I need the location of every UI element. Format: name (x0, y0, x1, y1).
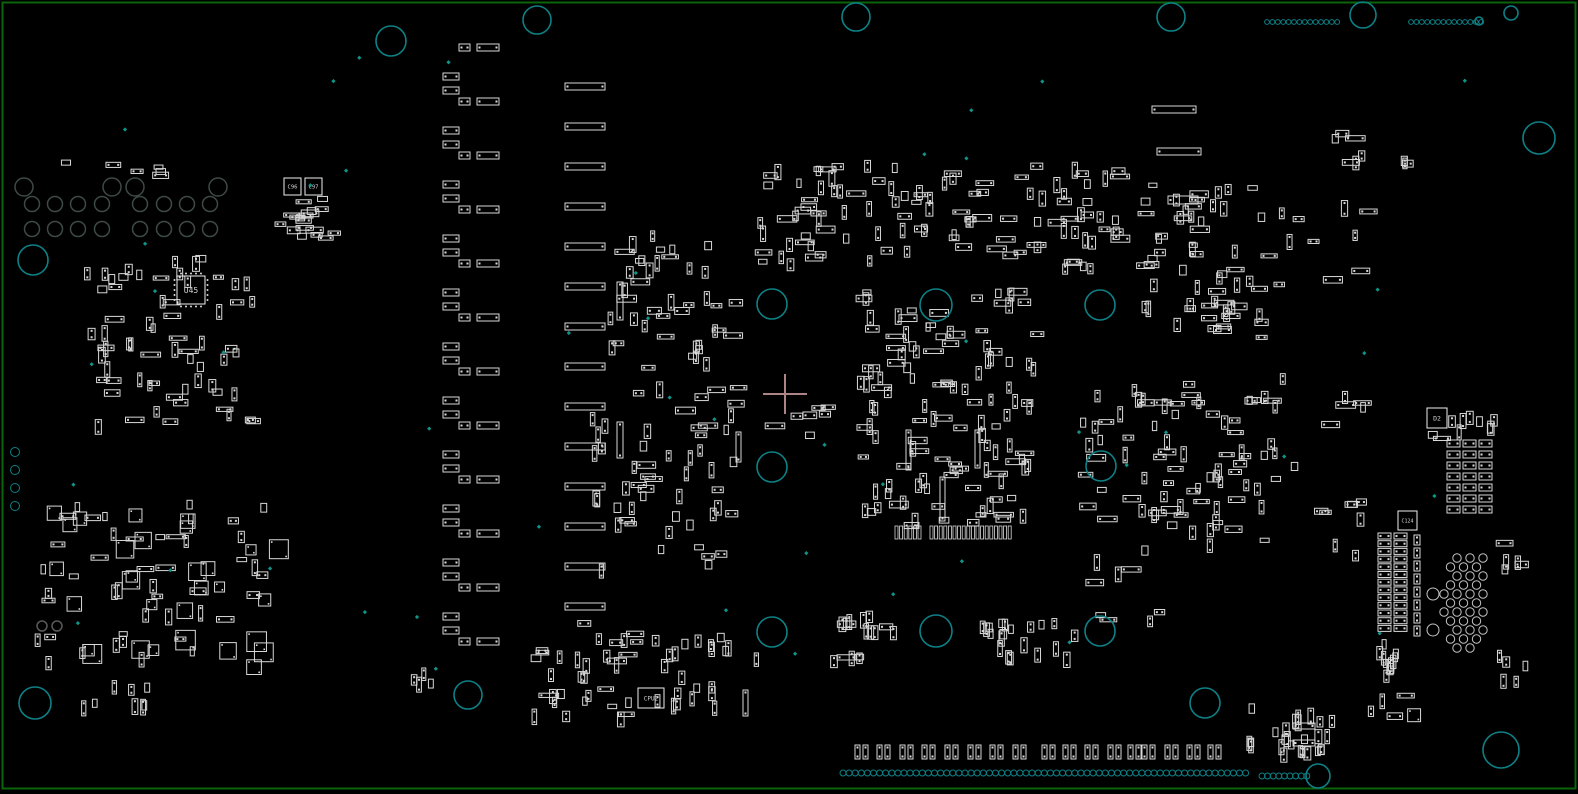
pad-marker (1334, 548, 1336, 550)
pad-marker (585, 670, 587, 672)
pad-marker (869, 420, 871, 422)
pad-marker (674, 648, 676, 650)
pad-marker (967, 223, 969, 225)
pad-marker (1416, 550, 1418, 552)
pad-marker (681, 681, 683, 683)
pad-marker (52, 636, 54, 638)
pad-marker (1249, 278, 1251, 280)
pad-marker (779, 218, 781, 220)
pad-marker (602, 366, 604, 368)
pad-marker (1261, 510, 1263, 512)
pad-marker (1014, 396, 1016, 398)
pad-marker (902, 747, 904, 749)
pad-marker (223, 356, 225, 358)
pad-marker (133, 642, 135, 644)
pad-marker (712, 517, 714, 519)
pad-marker (1361, 158, 1363, 160)
pad-marker (1137, 498, 1139, 500)
pad-marker (1462, 415, 1464, 417)
pad-marker (943, 383, 945, 385)
pad-marker (1212, 201, 1214, 203)
pad-marker (461, 101, 463, 103)
pad-marker (611, 351, 613, 353)
pad-marker (1192, 528, 1194, 530)
pad-marker (1306, 748, 1308, 750)
pad-marker (743, 387, 745, 389)
pad-marker (46, 636, 48, 638)
pad-marker (986, 633, 988, 635)
pad-marker (955, 468, 957, 470)
pad-marker (1052, 747, 1054, 749)
pad-marker (964, 391, 966, 393)
pad-marker (1200, 253, 1202, 255)
pad-marker (1230, 499, 1232, 501)
pad-marker (964, 386, 966, 388)
pad-marker (1388, 558, 1390, 560)
pad-marker (165, 315, 167, 317)
pad-marker (941, 505, 943, 507)
pad-marker (271, 541, 273, 543)
pad-marker (1161, 611, 1163, 613)
pad-marker (201, 338, 203, 340)
pad-marker (233, 389, 235, 391)
pad-marker (1404, 163, 1406, 165)
pad-marker (602, 526, 604, 528)
pad-marker (230, 618, 232, 620)
pad-marker (955, 747, 957, 749)
pad-marker (1289, 246, 1291, 248)
pad-marker (681, 673, 683, 675)
pad-marker (282, 223, 284, 225)
pin-marker (190, 273, 192, 275)
pad-marker (1399, 695, 1401, 697)
pad-marker (298, 201, 300, 203)
pad-marker (456, 130, 458, 132)
pad-marker (685, 477, 687, 479)
pad-marker (668, 457, 670, 459)
pad-marker (1017, 176, 1019, 178)
pad-marker (609, 314, 611, 316)
pad-marker (646, 426, 648, 428)
pad-marker (869, 257, 871, 259)
pad-marker (868, 203, 870, 205)
pad-marker (104, 338, 106, 340)
pad-marker (652, 232, 654, 234)
pad-marker (1183, 394, 1185, 396)
pad-marker (1228, 269, 1230, 271)
pad-marker (142, 711, 144, 713)
pad-marker (1110, 756, 1112, 758)
pad-marker (723, 553, 725, 555)
pad-marker (1388, 604, 1390, 606)
pad-marker (973, 297, 975, 299)
pad-marker (922, 475, 924, 477)
pad-marker (445, 454, 447, 456)
pad-marker (52, 543, 54, 545)
pad-marker (619, 424, 621, 426)
pad-marker (576, 664, 578, 666)
pad-marker (1063, 218, 1065, 220)
pad-marker (1388, 535, 1390, 537)
pad-marker (191, 590, 193, 592)
pad-marker (955, 343, 957, 345)
pad-marker (1044, 747, 1046, 749)
pad-marker (1388, 574, 1390, 576)
pad-marker (865, 456, 867, 458)
pad-marker (183, 337, 185, 339)
pad-marker (1317, 731, 1319, 733)
pad-marker (111, 347, 113, 349)
pad-marker (1449, 465, 1451, 467)
pad-marker (955, 427, 957, 429)
pad-marker (1147, 313, 1149, 315)
pad-marker (1379, 656, 1381, 658)
pad-marker (456, 454, 458, 456)
pad-marker (104, 277, 106, 279)
pad-marker (910, 756, 912, 758)
pad-marker (456, 616, 458, 618)
pad-marker (1152, 747, 1154, 749)
pad-marker (768, 251, 770, 253)
pad-marker (924, 756, 926, 758)
pad-marker (552, 691, 554, 693)
pad-marker (174, 264, 176, 266)
pad-marker (908, 467, 910, 469)
pad-marker (1041, 203, 1043, 205)
pad-marker (985, 191, 987, 193)
pad-marker (1416, 542, 1418, 544)
pad-marker (1457, 487, 1459, 489)
pad-marker (1301, 218, 1303, 220)
pad-marker (1237, 315, 1239, 317)
pad-marker (633, 470, 635, 472)
pad-marker (857, 756, 859, 758)
pad-marker (969, 522, 971, 524)
pad-marker (456, 576, 458, 578)
pad-marker (1218, 747, 1220, 749)
pad-marker (1073, 756, 1075, 758)
pad-marker (863, 614, 865, 616)
pad-marker (1197, 394, 1199, 396)
pad-marker (1473, 443, 1475, 445)
pad-marker (195, 350, 197, 352)
pad-marker (1236, 280, 1238, 282)
pad-marker (1416, 620, 1418, 622)
pad-marker (1175, 756, 1177, 758)
pad-marker (664, 669, 666, 671)
pad-marker (1125, 437, 1127, 439)
pad-marker (1517, 564, 1519, 566)
pad-marker (739, 302, 741, 304)
pad-marker (218, 618, 220, 620)
pad-marker (1493, 416, 1495, 418)
pad-marker (663, 256, 665, 258)
pad-marker (1189, 300, 1191, 302)
pad-marker (456, 522, 458, 524)
pad-marker (944, 343, 946, 345)
pad-marker (1295, 725, 1297, 727)
pad-marker (113, 537, 115, 539)
pad-marker (1012, 238, 1014, 240)
pad-marker (1388, 597, 1390, 599)
pad-marker (865, 302, 867, 304)
pad-marker (1416, 581, 1418, 583)
pad-marker (47, 590, 49, 592)
pad-marker (629, 275, 631, 277)
pad-marker (867, 169, 869, 171)
pad-marker (1302, 748, 1304, 750)
pad-marker (1217, 195, 1219, 197)
pad-marker (975, 522, 977, 524)
pad-marker (1217, 188, 1219, 190)
pad-marker (906, 248, 908, 250)
pad-marker (567, 126, 569, 128)
pad-marker (916, 194, 918, 196)
pad-marker (1361, 210, 1363, 212)
pad-marker (924, 439, 926, 441)
pad-marker (1094, 430, 1096, 432)
pad-marker (1119, 408, 1121, 410)
pad-marker (659, 478, 661, 480)
pad-marker (320, 237, 322, 239)
pad-marker (887, 756, 889, 758)
pad-marker (1089, 270, 1091, 272)
pad-marker (1159, 151, 1161, 153)
pad-marker (1195, 199, 1197, 201)
pad-marker (230, 520, 232, 522)
pad-marker (251, 304, 253, 306)
pad-marker (1126, 176, 1128, 178)
pad-marker (1206, 228, 1208, 230)
pad-marker (117, 164, 119, 166)
pin-marker (174, 294, 176, 296)
pad-marker (97, 431, 99, 433)
pad-marker (966, 218, 968, 220)
pad-marker (196, 583, 198, 585)
pad-marker (1144, 756, 1146, 758)
pad-marker (580, 679, 582, 681)
pad-marker (1358, 501, 1360, 503)
pad-marker (691, 693, 693, 695)
pad-marker (1000, 756, 1002, 758)
pad-marker (1069, 261, 1071, 263)
pad-marker (1404, 558, 1406, 560)
pad-marker (902, 362, 904, 364)
pad-marker (599, 688, 601, 690)
pad-marker (843, 216, 845, 218)
pad-marker (1396, 574, 1398, 576)
pad-marker (1404, 574, 1406, 576)
pad-marker (1396, 543, 1398, 545)
pad-marker (1138, 394, 1140, 396)
pad-marker (456, 400, 458, 402)
pad-marker (106, 374, 108, 376)
pad-marker (1381, 705, 1383, 707)
pad-marker (1209, 549, 1211, 551)
pad-marker (479, 371, 481, 373)
pad-marker (602, 486, 604, 488)
pad-marker (823, 406, 825, 408)
pad-marker (933, 423, 935, 425)
pad-marker (623, 660, 625, 662)
pad-marker (727, 642, 729, 644)
pad-marker (1481, 487, 1483, 489)
pad-marker (717, 512, 719, 514)
pad-marker (567, 286, 569, 288)
pad-marker (1354, 232, 1356, 234)
pad-marker (714, 425, 716, 427)
pad-marker (1014, 405, 1016, 407)
pad-marker (240, 539, 242, 541)
pad-marker (479, 47, 481, 49)
pad-marker (1418, 719, 1420, 721)
pad-marker (989, 510, 991, 512)
pad-marker (1087, 747, 1089, 749)
pad-marker (149, 327, 151, 329)
pcb-canvas[interactable]: U45C96C97CPU2D2C124 (0, 0, 1578, 794)
pad-marker (1473, 476, 1475, 478)
pad-marker (652, 367, 654, 369)
pad-marker (467, 101, 469, 103)
pad-marker (211, 388, 213, 390)
pad-marker (1183, 448, 1185, 450)
pad-marker (655, 637, 657, 639)
pad-marker (619, 455, 621, 457)
pad-marker (1030, 623, 1032, 625)
pad-marker (690, 304, 692, 306)
pad-marker (1234, 247, 1236, 249)
pad-marker (1032, 364, 1034, 366)
pad-marker (1187, 205, 1189, 207)
pad-marker (602, 126, 604, 128)
pad-marker (106, 363, 108, 365)
pad-marker (738, 434, 740, 436)
pad-marker (1502, 676, 1504, 678)
pad-marker (1032, 165, 1034, 167)
pad-marker (1217, 474, 1219, 476)
pad-marker (1228, 329, 1230, 331)
pad-marker (714, 329, 716, 331)
pad-marker (1055, 643, 1057, 645)
pad-marker (1160, 451, 1162, 453)
pad-marker (445, 144, 447, 146)
pad-marker (1183, 458, 1185, 460)
pad-marker (905, 328, 907, 330)
pad-marker (689, 271, 691, 273)
pad-marker (122, 638, 124, 640)
pad-marker (812, 212, 814, 214)
pad-marker (1295, 742, 1297, 744)
pad-marker (1176, 328, 1178, 330)
pad-marker (1230, 303, 1232, 305)
pad-marker (711, 464, 713, 466)
pin-marker (195, 306, 197, 308)
pad-marker (970, 747, 972, 749)
pad-marker (610, 688, 612, 690)
pad-marker (717, 502, 719, 504)
pad-marker (467, 47, 469, 49)
pad-marker (631, 713, 633, 715)
pad-marker (699, 453, 701, 455)
pad-marker (128, 271, 130, 273)
pad-marker (623, 644, 625, 646)
pad-marker (105, 343, 107, 345)
pad-marker (550, 678, 552, 680)
pad-marker (633, 484, 635, 486)
pad-marker (567, 206, 569, 208)
pad-marker (619, 642, 621, 644)
pad-marker (1465, 454, 1467, 456)
pad-marker (949, 328, 951, 330)
pad-marker (981, 430, 983, 432)
pad-marker (84, 522, 86, 524)
pad-marker (714, 334, 716, 336)
pad-marker (644, 328, 646, 330)
pad-marker (1360, 515, 1362, 517)
pad-marker (1244, 305, 1246, 307)
pad-marker (254, 572, 256, 574)
pad-marker (1302, 754, 1304, 756)
pin-marker (180, 273, 182, 275)
pad-marker (223, 362, 225, 364)
pad-marker (895, 204, 897, 206)
pad-marker (567, 606, 569, 608)
pad-marker (1344, 393, 1346, 395)
pad-marker (871, 402, 873, 404)
pad-marker (1465, 443, 1467, 445)
pad-marker (1416, 537, 1418, 539)
pad-marker (1360, 523, 1362, 525)
pad-marker (1355, 552, 1357, 554)
pad-marker (496, 155, 498, 157)
pad-marker (181, 350, 183, 352)
pad-marker (879, 747, 881, 749)
pad-marker (657, 704, 659, 706)
pad-marker (722, 329, 724, 331)
pad-marker (249, 594, 251, 596)
pad-marker (1011, 290, 1013, 292)
pad-marker (177, 632, 179, 634)
pad-marker (496, 317, 498, 319)
pad-marker (1170, 482, 1172, 484)
pad-marker (1396, 627, 1398, 629)
pad-marker (789, 267, 791, 269)
pad-marker (97, 517, 99, 519)
pad-marker (337, 232, 339, 234)
pad-marker (999, 653, 1001, 655)
pad-marker (887, 747, 889, 749)
pad-marker (618, 298, 620, 300)
pin-marker (195, 273, 197, 275)
pad-marker (780, 253, 782, 255)
pad-marker (1008, 652, 1010, 654)
pad-marker (1235, 463, 1237, 465)
pad-marker (1156, 611, 1158, 613)
pad-marker (686, 310, 688, 312)
pad-marker (1009, 440, 1011, 442)
pad-marker (1099, 213, 1101, 215)
pad-marker (711, 653, 713, 655)
pad-marker (1388, 612, 1390, 614)
pad-marker (1118, 747, 1120, 749)
pad-marker (739, 335, 741, 337)
pad-marker (1416, 628, 1418, 630)
pad-marker (852, 623, 854, 625)
pad-marker (1462, 425, 1464, 427)
pad-marker (1164, 400, 1166, 402)
pad-marker (145, 610, 147, 612)
pad-marker (1473, 454, 1475, 456)
